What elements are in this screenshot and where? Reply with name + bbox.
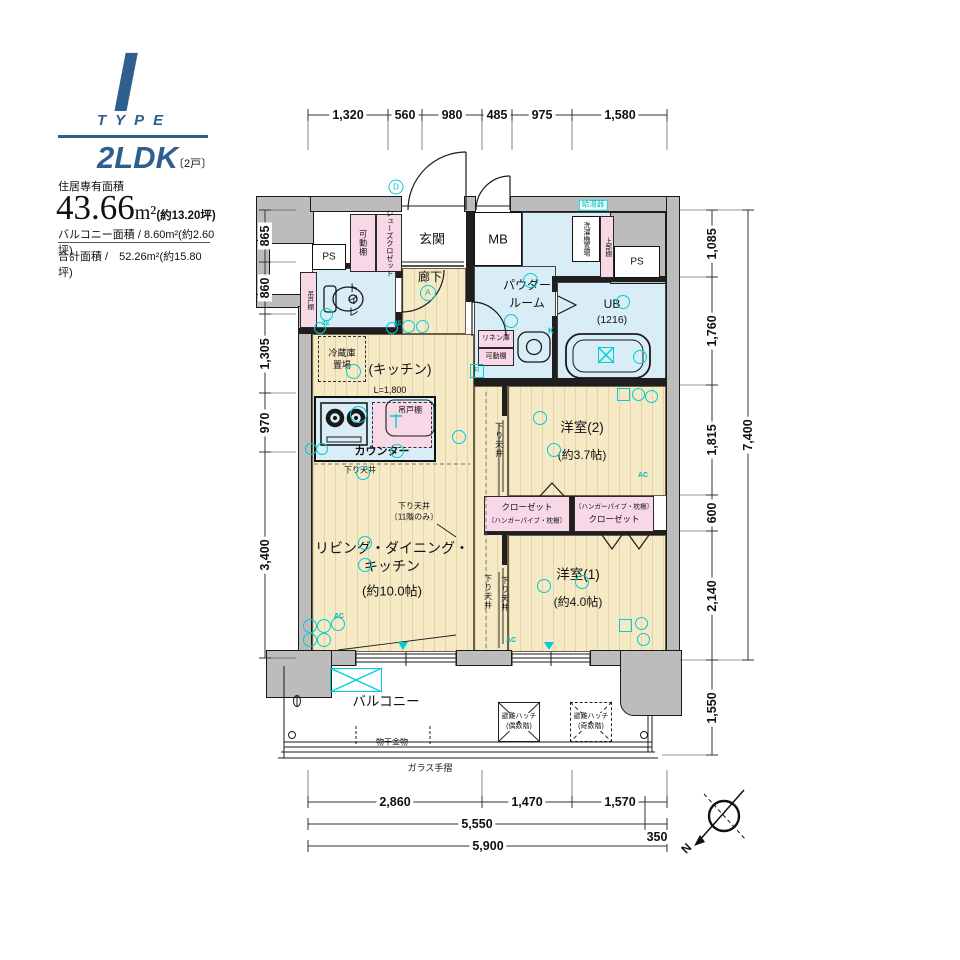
r-label: R <box>470 364 484 378</box>
partition <box>502 535 507 565</box>
lowered-ceiling-strip2: 下り天井 <box>483 574 492 610</box>
compass-n-label: N <box>679 841 695 857</box>
dim-bottom3: 5,900 <box>469 839 506 853</box>
hatch-even-label-2: (偶数階) <box>506 723 532 731</box>
symbol-icon <box>617 388 630 401</box>
dim-top-5: 975 <box>529 108 556 122</box>
symbol-icon <box>390 444 404 458</box>
symbol-icon <box>452 430 466 444</box>
toilet-cupboard-label: 吊戸棚 <box>305 290 312 310</box>
glass-rail-label: ガラス手摺 <box>408 763 453 773</box>
divider <box>58 242 210 243</box>
upper-shelf-label: 上部棚 <box>603 237 610 257</box>
symbol-icon <box>637 633 650 646</box>
ac-label-room2: AC <box>638 472 648 479</box>
closet-right-label: クローゼット <box>588 515 639 525</box>
type-word: TYPE <box>97 112 172 129</box>
dim-top-4: 485 <box>484 108 511 122</box>
dim-right-3: 1,815 <box>705 421 719 458</box>
dim-bottom2-2: 350 <box>644 830 671 844</box>
symbol-icon <box>547 443 561 457</box>
movable-shelf-entrance-label: 可動棚 <box>358 230 367 257</box>
dim-left-1: 865 <box>258 223 272 250</box>
ac-label-room1: AC <box>506 637 516 644</box>
symbol-icon <box>616 295 630 309</box>
symbol-icon <box>632 388 645 401</box>
ps-right-label: PS <box>630 256 643 268</box>
dim-top-3: 980 <box>439 108 466 122</box>
dim-top-2: 560 <box>392 108 419 122</box>
door-a-label: A <box>420 285 436 301</box>
hatch-odd-label-1: 避難ハッチ <box>574 713 609 721</box>
symbol-icon <box>356 466 370 480</box>
partition <box>474 378 666 386</box>
lowered-ceiling-note-2: 〔11階のみ〕 <box>390 512 438 521</box>
dim-right-5: 2,140 <box>705 577 719 614</box>
hatch-odd-label-2: (奇数階) <box>578 723 604 731</box>
partition <box>502 386 507 416</box>
symbol-icon <box>386 322 398 334</box>
tub-cyan-box <box>598 347 614 363</box>
closet-right-note: 〔ハンガーパイプ・枕棚〕 <box>575 503 653 510</box>
wall <box>266 650 332 698</box>
door-d-label: D <box>389 180 404 195</box>
closet-left-label: クローゼット <box>501 503 552 513</box>
dim-right-balcony: 1,550 <box>705 689 719 726</box>
symbol-icon <box>537 579 551 593</box>
symbol-icon <box>402 320 415 333</box>
ub-label-2: (1216) <box>597 314 627 326</box>
dim-right-1: 1,085 <box>705 225 719 262</box>
movable-shelf-powder-label: 可動棚 <box>486 353 507 361</box>
washer-label: 洗濯機置場 <box>582 222 590 257</box>
symbol-icon <box>320 308 333 321</box>
wall <box>666 196 680 666</box>
hatch-even-label-1: 避難ハッチ <box>502 713 537 721</box>
water-heater-label: 給湯器 <box>579 200 608 211</box>
k-label: K <box>548 326 554 335</box>
symbol-icon <box>316 443 328 455</box>
total-area-line: 合計面積 / 52.26m²(約15.80坪) <box>58 248 215 280</box>
room2-floor <box>508 386 666 496</box>
symbol-icon <box>303 619 317 633</box>
mb-door-arc <box>476 176 510 210</box>
dim-left-2: 860 <box>258 275 272 302</box>
area-unit: m² <box>135 202 157 224</box>
ldk-label-1: リビング・ダイニング・ <box>315 540 469 556</box>
ldk-size-label: (約10.0帖) <box>362 585 422 600</box>
powder-room-label-2: ルーム <box>509 297 545 311</box>
closet-left-note: 〔ハンガーパイプ・枕棚〕 <box>488 517 566 524</box>
dim-top-1: 1,320 <box>329 108 366 122</box>
dim-bottom1-2: 1,470 <box>508 795 545 809</box>
symbol-icon <box>645 390 658 403</box>
symbol-icon <box>358 536 372 550</box>
room2-label: 洋室(2) <box>560 420 604 436</box>
compass-icon <box>694 790 746 846</box>
kitchen-label: (キッチン) <box>369 362 432 378</box>
wall <box>464 196 476 212</box>
balcony-label: バルコニー <box>352 694 419 710</box>
plan-type: 2LDK <box>97 140 178 176</box>
units-note: 〔2戸〕 <box>173 155 212 171</box>
symbol-icon <box>331 617 345 631</box>
fridge-label-1: 冷蔵庫 <box>328 348 355 358</box>
wall <box>456 650 512 666</box>
ps-left-label: PS <box>322 251 335 263</box>
symbol-icon <box>317 633 331 647</box>
symbol-icon <box>635 617 648 630</box>
dim-right-4: 600 <box>705 500 719 527</box>
partition <box>466 212 474 302</box>
mb-label: MB <box>488 233 508 248</box>
dim-bottom2-1: 5,550 <box>458 817 495 831</box>
symbol-icon <box>619 619 632 632</box>
type-block: I TYPE 2LDK 〔2戸〕 住居専有面積 43.66m²(約13.20坪)… <box>55 40 215 260</box>
dim-bottom1-3: 1,570 <box>601 795 638 809</box>
dim-left-5: 3,400 <box>258 536 272 573</box>
partition <box>552 282 557 292</box>
dim-top-6: 1,580 <box>601 108 638 122</box>
symbol-icon <box>523 273 538 288</box>
dim-left-4: 970 <box>258 410 272 437</box>
window-marker-icon <box>544 642 554 650</box>
window-marker-icon <box>398 642 408 650</box>
laundry-hardware-label: 物干金物 <box>376 737 408 746</box>
dim-left-3: 1,305 <box>258 335 272 372</box>
wall <box>620 650 682 716</box>
symbol-icon <box>416 320 429 333</box>
symbol-icon <box>350 406 367 423</box>
lowered-ceiling-strip1: 下り天井 <box>494 422 503 458</box>
symbol-icon <box>314 322 326 334</box>
shoes-closet-label: シューズクロゼット <box>385 209 394 277</box>
type-underline <box>58 135 208 138</box>
symbol-icon <box>504 314 518 328</box>
symbol-icon <box>575 575 589 589</box>
entrance-label: 玄関 <box>419 233 445 248</box>
room2-size-label: (約3.7帖) <box>558 449 607 463</box>
ldk-label-2: キッチン <box>364 558 420 574</box>
hanging-cupboard-label: 吊戸棚 <box>398 405 422 414</box>
lowered-ceiling-note-1: 下り天井 <box>398 501 430 510</box>
room1-size-label: (約4.0帖) <box>554 596 603 610</box>
wall <box>298 306 312 666</box>
symbol-icon <box>533 411 547 425</box>
lowered-ceiling-strip3: 下り天井 <box>500 576 509 612</box>
area-value: 43.66 <box>56 188 135 227</box>
symbol-icon <box>303 633 317 647</box>
dim-right-total: 7,400 <box>741 416 755 453</box>
entrance-door-arc <box>408 152 466 210</box>
symbol-icon <box>317 619 331 633</box>
dim-right-2: 1,760 <box>705 312 719 349</box>
kitchen-length-label: L=1,800 <box>374 385 407 395</box>
symbol-icon <box>633 350 647 364</box>
dim-bottom1-1: 2,860 <box>376 795 413 809</box>
balcony-cyan-box <box>330 668 382 692</box>
corridor-label: 廊下 <box>418 271 442 285</box>
area-tsubo: (約13.20坪) <box>156 210 215 222</box>
symbol-icon <box>358 558 372 572</box>
symbol-icon <box>346 364 361 379</box>
toilet-label: トイレ <box>346 282 359 318</box>
linen-label: リネン庫 <box>482 335 510 343</box>
floor-plan-page: I TYPE 2LDK 〔2戸〕 住居専有面積 43.66m²(約13.20坪)… <box>0 0 960 960</box>
